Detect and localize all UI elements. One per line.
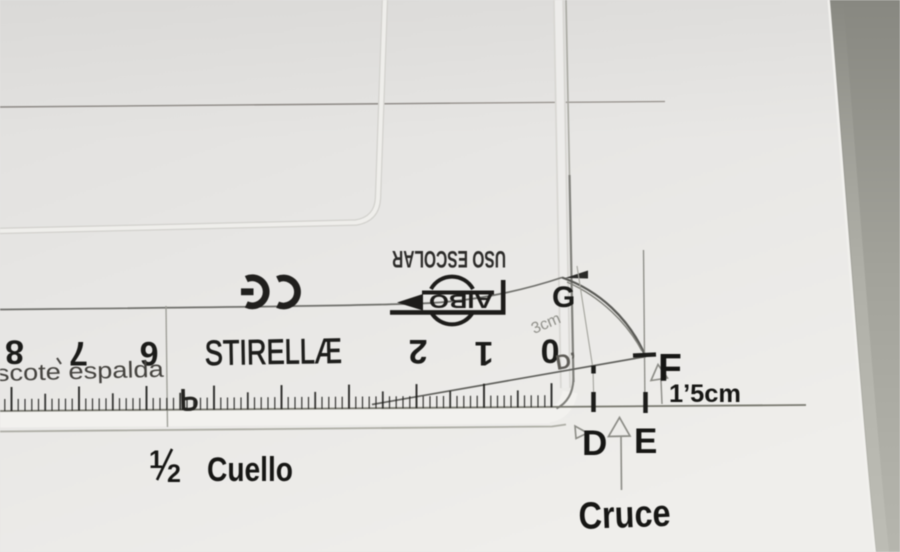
svg-text:G: G — [552, 281, 575, 314]
svg-text:STIRELLÆ: STIRELLÆ — [204, 332, 342, 373]
svg-text:D: D — [582, 424, 607, 463]
svg-text:D’: D’ — [554, 349, 579, 375]
svg-text:1’5cm: 1’5cm — [669, 380, 741, 408]
svg-text:Cruce: Cruce — [578, 493, 671, 538]
svg-text:2: 2 — [167, 460, 181, 488]
svg-text:scote espalda: scote espalda — [0, 356, 164, 386]
svg-text:2: 2 — [409, 332, 428, 370]
svg-text:Cuello: Cuello — [207, 451, 293, 489]
svg-text:E: E — [634, 422, 657, 461]
svg-text:1: 1 — [475, 334, 494, 372]
svg-text:USO ESCOLAR: USO ESCOLAR — [392, 245, 506, 272]
